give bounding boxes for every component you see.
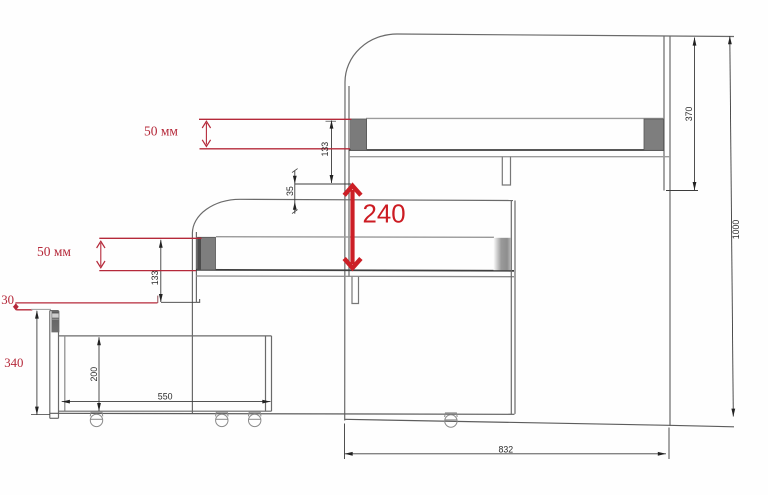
svg-text:50 мм: 50 мм [37,244,71,259]
svg-text:133: 133 [150,271,160,286]
svg-text:133: 133 [320,142,330,157]
svg-text:200: 200 [89,367,99,382]
svg-text:1000: 1000 [731,220,741,240]
svg-text:50 мм: 50 мм [144,123,178,138]
svg-text:832: 832 [499,445,514,455]
svg-text:550: 550 [158,391,173,401]
svg-text:340: 340 [4,356,23,370]
svg-text:30: 30 [1,293,14,307]
svg-text:35: 35 [285,186,295,196]
svg-text:240: 240 [363,200,406,228]
svg-text:370: 370 [684,107,694,122]
